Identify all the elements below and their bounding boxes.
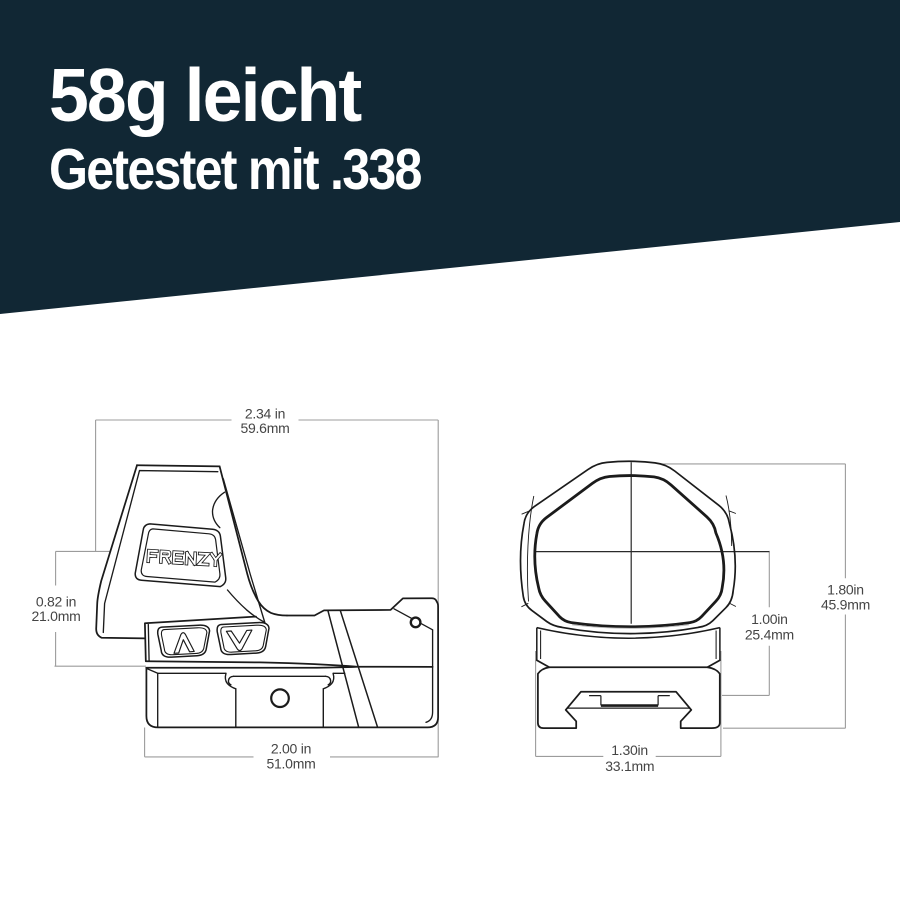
svg-text:1.00in: 1.00in — [751, 611, 788, 627]
svg-text:1.30in: 1.30in — [611, 742, 648, 758]
svg-text:51.0mm: 51.0mm — [266, 755, 315, 771]
svg-text:33.1mm: 33.1mm — [605, 758, 654, 774]
svg-text:25.4mm: 25.4mm — [745, 626, 794, 642]
svg-text:2.34 in: 2.34 in — [245, 406, 285, 422]
svg-text:1.80in: 1.80in — [827, 581, 864, 597]
svg-text:45.9mm: 45.9mm — [821, 597, 870, 613]
svg-text:21.0mm: 21.0mm — [31, 608, 80, 624]
svg-text:0.82 in: 0.82 in — [36, 594, 76, 610]
svg-text:2.00 in: 2.00 in — [271, 741, 311, 757]
svg-text:59.6mm: 59.6mm — [240, 420, 289, 436]
